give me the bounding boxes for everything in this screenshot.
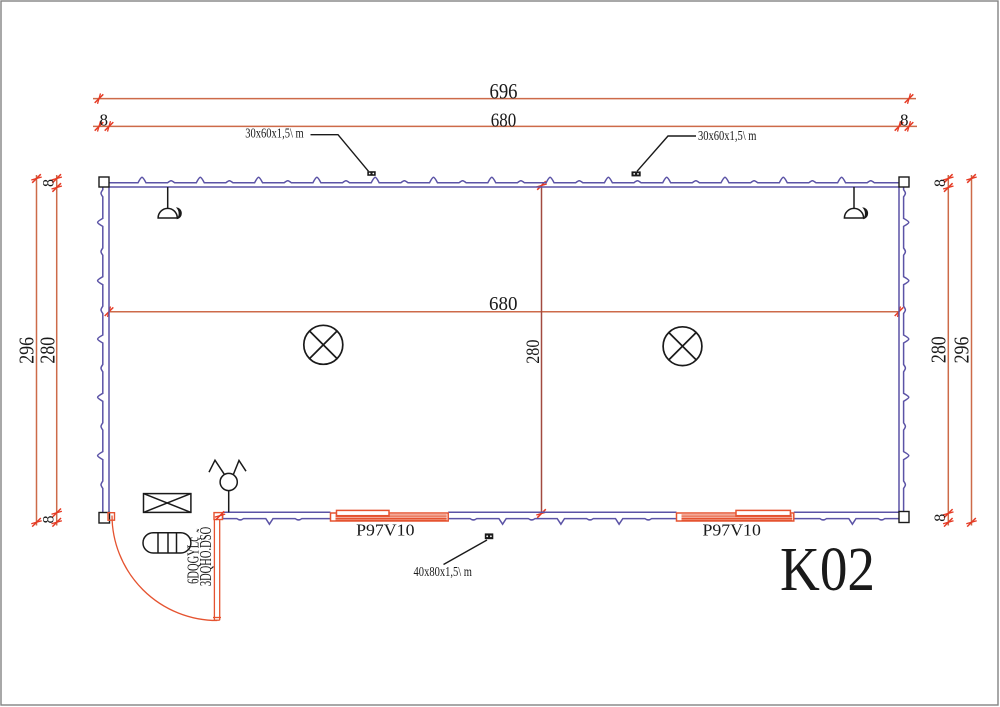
svg-text:696: 696 xyxy=(489,80,517,104)
svg-text:30x60x1,5\ m: 30x60x1,5\ m xyxy=(698,128,757,144)
svg-text:8: 8 xyxy=(41,179,58,187)
svg-text:30x60x1,5\ m: 30x60x1,5\ m xyxy=(245,125,304,141)
svg-text:280: 280 xyxy=(928,336,951,363)
svg-text:680: 680 xyxy=(491,109,516,132)
svg-text:280: 280 xyxy=(522,339,544,363)
svg-text:3DQHO.DSÕ: 3DQHO.DSÕ xyxy=(196,527,216,586)
svg-text:P97V10: P97V10 xyxy=(703,521,761,539)
svg-text:40x80x1,5\ m: 40x80x1,5\ m xyxy=(414,564,473,580)
svg-text:8: 8 xyxy=(932,179,949,187)
svg-text:8: 8 xyxy=(100,110,109,129)
svg-text:P97V10: P97V10 xyxy=(356,521,414,539)
svg-text:8: 8 xyxy=(932,514,949,522)
svg-text:296: 296 xyxy=(951,336,974,363)
svg-text:296: 296 xyxy=(16,337,39,364)
svg-text:K02: K02 xyxy=(780,535,875,604)
svg-text:280: 280 xyxy=(37,337,60,364)
svg-text:680: 680 xyxy=(489,293,517,315)
svg-text:8: 8 xyxy=(41,516,58,524)
svg-text:8: 8 xyxy=(900,110,909,129)
